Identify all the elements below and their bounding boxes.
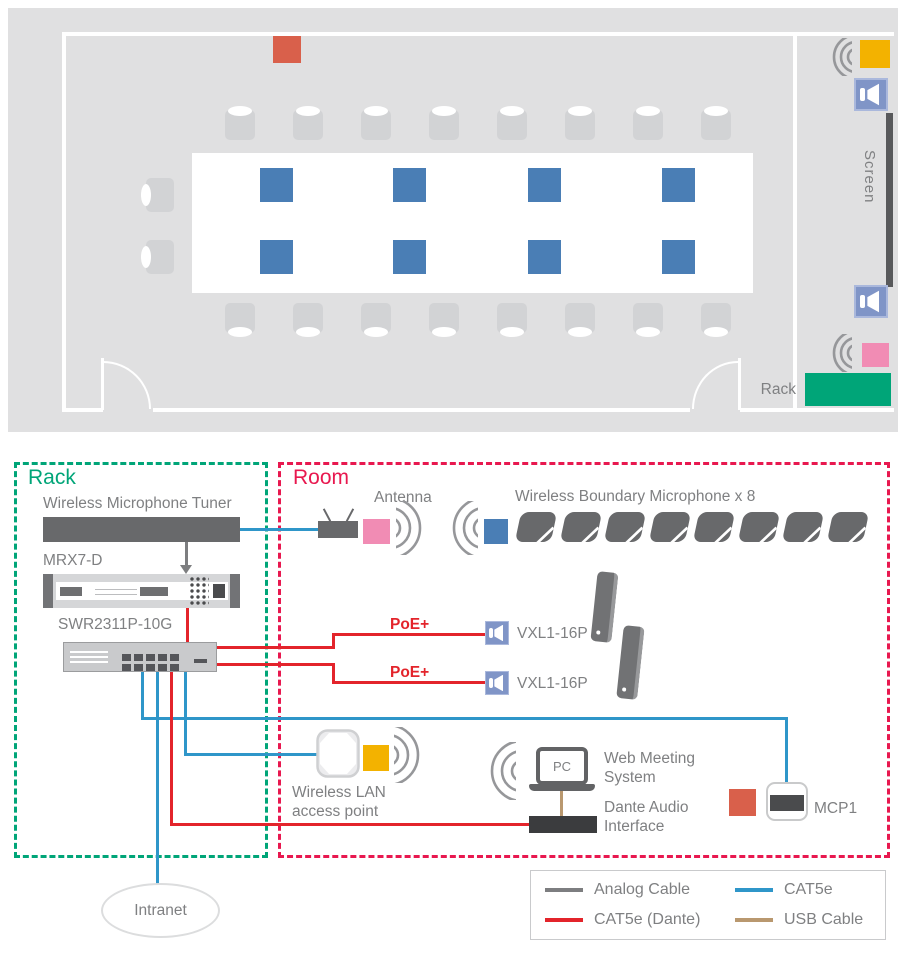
speaker-horn xyxy=(494,625,503,642)
uplink-port xyxy=(194,659,207,663)
boundary-mic-icon xyxy=(515,512,557,542)
chair xyxy=(293,110,323,140)
chair xyxy=(565,303,595,333)
mcp1-device xyxy=(766,782,808,821)
chair xyxy=(225,303,255,333)
switch-label: SWR2311P-10G xyxy=(58,615,172,634)
vent-stripe xyxy=(70,656,108,658)
wlan-yellow-square xyxy=(363,745,389,771)
speaker-bar xyxy=(860,295,865,308)
legend-label: CAT5e xyxy=(784,881,833,899)
panel-button xyxy=(213,584,225,598)
page: Screen Rack Rack Room Wireless Microphon… xyxy=(0,0,900,958)
wall-right-inner xyxy=(793,32,797,412)
port-row xyxy=(122,658,182,676)
cat5e-dante-cable xyxy=(170,823,530,826)
cat5e-cable xyxy=(184,753,317,756)
web-meeting-line1: Web Meeting xyxy=(604,749,695,768)
speaker-bar xyxy=(860,88,865,101)
pc-label: PC xyxy=(553,759,571,774)
cat5e-sample xyxy=(735,888,773,892)
dante-line1: Dante Audio xyxy=(604,798,688,817)
network-switch-device xyxy=(63,642,217,672)
wlan-label: Wireless LAN access point xyxy=(292,783,386,821)
legend-label: Analog Cable xyxy=(594,881,690,899)
laptop-screen: PC xyxy=(536,747,588,785)
intranet-cloud: Intranet xyxy=(101,883,220,938)
chair xyxy=(565,110,595,140)
cat5e-cable xyxy=(240,528,318,531)
analog-cable-sample xyxy=(545,888,583,892)
chair xyxy=(497,303,527,333)
chair xyxy=(361,303,391,333)
door-swing-arc xyxy=(103,361,151,409)
chair xyxy=(146,178,174,212)
vxl-speaker-label: VXL1-16P xyxy=(517,674,588,693)
boundary-mic-square xyxy=(528,168,561,202)
boundary-mic-square xyxy=(662,240,695,274)
boundary-mic-blue-square xyxy=(484,519,508,544)
legend-label: CAT5e (Dante) xyxy=(594,911,700,929)
speaker-horn xyxy=(867,290,879,312)
wireless-waves-icon xyxy=(826,334,852,372)
speaker-icon xyxy=(854,78,888,111)
screen-bar xyxy=(886,113,893,287)
speaker-bar xyxy=(489,628,493,638)
chair xyxy=(225,110,255,140)
wireless-waves-icon xyxy=(394,727,428,783)
arrow-down-icon xyxy=(180,565,192,574)
wall-bottom-seg xyxy=(153,408,690,412)
poe-label: PoE+ xyxy=(390,616,429,634)
floor-plan: Screen Rack xyxy=(8,8,898,432)
dante-label: Dante Audio Interface xyxy=(604,798,688,836)
screen-label: Screen xyxy=(861,150,878,204)
mcp1-label: MCP1 xyxy=(814,799,857,818)
boundary-mic-square xyxy=(393,240,426,274)
rack-group-title: Rack xyxy=(28,466,76,490)
usb-cable xyxy=(560,791,563,818)
dante-line2: Interface xyxy=(604,817,688,836)
legend-label: USB Cable xyxy=(784,911,863,929)
wlan-label-line2: access point xyxy=(292,802,386,821)
boundary-mic-square xyxy=(260,168,293,202)
speaker-bar xyxy=(489,678,493,688)
mcp1-orange-square xyxy=(729,789,756,816)
chair xyxy=(429,303,459,333)
dante-interface-device xyxy=(529,816,597,833)
chair xyxy=(633,110,663,140)
wireless-waves-icon xyxy=(482,742,516,800)
wall-bottom-seg xyxy=(62,408,103,412)
mrx7d-device xyxy=(43,574,240,608)
legend-item-dante: CAT5e (Dante) xyxy=(545,911,735,929)
intranet-label: Intranet xyxy=(134,902,187,920)
legend-item-analog: Analog Cable xyxy=(545,881,735,899)
rack-ear xyxy=(230,574,240,608)
analog-cable xyxy=(185,542,188,567)
cat5e-cable xyxy=(184,672,187,756)
cat5e-cable xyxy=(141,717,788,720)
wall-bottom-seg xyxy=(740,408,894,412)
boundary-mic-icon xyxy=(604,512,646,542)
vxl-speaker-label: VXL1-16P xyxy=(517,624,588,643)
boundary-mic-square xyxy=(662,168,695,202)
antenna-pink-square xyxy=(363,519,390,544)
chair xyxy=(429,110,459,140)
antenna-device xyxy=(318,521,358,538)
boundary-mic-icon xyxy=(782,512,824,542)
speaker-icon xyxy=(854,285,888,318)
cat5e-cable xyxy=(141,672,144,720)
antenna-pink-square xyxy=(862,343,889,367)
tuner-label: Wireless Microphone Tuner xyxy=(43,494,232,513)
usb-cable-sample xyxy=(735,918,773,922)
boundary-mic-icon xyxy=(649,512,691,542)
panel-display xyxy=(140,587,168,596)
wlan-ap-yellow-square xyxy=(860,40,890,68)
speaker-horn xyxy=(494,675,503,692)
mcp1-screen xyxy=(770,795,804,811)
cat5e-dante-cable xyxy=(217,663,335,666)
presenter-orange-square xyxy=(273,36,301,63)
boundary-mic-square xyxy=(260,240,293,274)
cat5e-dante-cable xyxy=(217,646,335,649)
boundary-mic-icon xyxy=(738,512,780,542)
cat5e-dante-cable xyxy=(186,608,189,642)
boundary-mic-icon xyxy=(827,512,869,542)
legend-item-cat5e: CAT5e xyxy=(735,881,885,899)
wlan-label-line1: Wireless LAN xyxy=(292,783,386,802)
rack-ear xyxy=(43,574,53,608)
chair xyxy=(361,110,391,140)
cat5e-cable xyxy=(785,717,788,784)
poe-label: PoE+ xyxy=(390,664,429,682)
rack-green-rect xyxy=(805,373,891,406)
chair xyxy=(701,110,731,140)
cat5e-cable xyxy=(156,672,159,884)
speaker-horn xyxy=(867,83,879,105)
laptop-base xyxy=(529,784,595,791)
boundary-mic-icon xyxy=(560,512,602,542)
vent-stripe xyxy=(70,661,108,663)
chair xyxy=(293,303,323,333)
panel-slots xyxy=(95,589,137,595)
mrx7d-label: MRX7-D xyxy=(43,551,102,570)
wireless-waves-icon xyxy=(444,501,478,555)
wireless-waves-icon xyxy=(826,38,852,76)
chair xyxy=(633,303,663,333)
panel-display xyxy=(60,587,82,596)
panel-knob-grid xyxy=(189,576,209,606)
cat5e-dante-sample xyxy=(545,918,583,922)
chair xyxy=(146,240,174,274)
boundary-mic-label: Wireless Boundary Microphone x 8 xyxy=(515,487,755,506)
wall-top xyxy=(62,32,894,36)
legend-item-usb: USB Cable xyxy=(735,911,885,929)
rack-zone-label: Rack xyxy=(708,380,796,399)
speaker-icon xyxy=(485,621,509,645)
web-meeting-label: Web Meeting System xyxy=(604,749,695,787)
wall-left xyxy=(62,32,66,412)
speaker-icon xyxy=(485,671,509,695)
vent-stripe xyxy=(70,651,108,653)
wireless-waves-icon xyxy=(396,501,430,555)
wlan-access-point-device xyxy=(316,729,360,778)
boundary-mic-icon xyxy=(693,512,735,542)
chair xyxy=(701,303,731,333)
room-group-title: Room xyxy=(293,466,349,490)
legend-box: Analog Cable CAT5e (Dante) CAT5e USB Cab… xyxy=(530,870,886,940)
web-meeting-line2: System xyxy=(604,768,695,787)
cat5e-dante-cable xyxy=(170,672,173,826)
boundary-mic-square xyxy=(528,240,561,274)
chair xyxy=(497,110,527,140)
boundary-mic-square xyxy=(393,168,426,202)
wireless-mic-tuner-device xyxy=(43,517,240,542)
